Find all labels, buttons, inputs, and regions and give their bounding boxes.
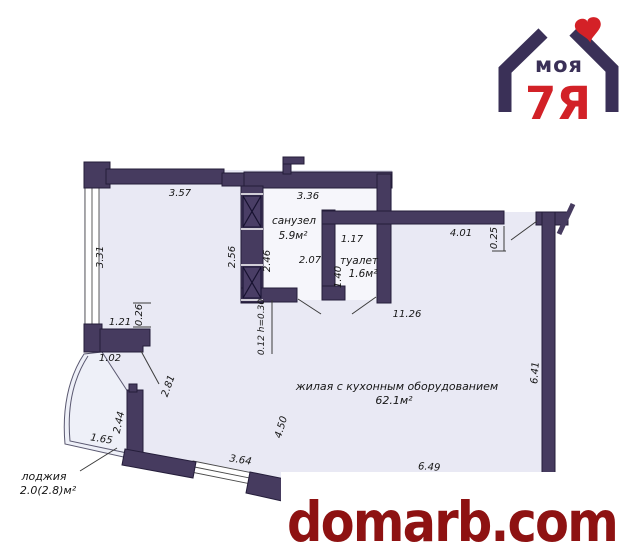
logo-brand: 7Я — [525, 77, 591, 130]
dim-bathroom-top: 3.36 — [297, 191, 319, 202]
agency-logo: моя 7Я — [505, 16, 612, 130]
wall-loggia-stub — [129, 384, 137, 392]
wall-top-b — [222, 173, 246, 186]
dim-shaft-outer: 2.56 — [227, 246, 238, 268]
dim-niche-depth: 0.26 — [134, 304, 145, 326]
dim-bottom-wall: 6.49 — [418, 461, 441, 474]
wall-right — [542, 212, 555, 473]
loggia-label: лоджия — [20, 470, 66, 483]
dim-bathroom-width: 2.07 — [299, 255, 322, 266]
living-label: жилая с кухонным оборудованием — [295, 380, 498, 393]
floorplan-page: 3.57 3.31 3.36 2.56 2.46 1.17 2.07 1.40 … — [0, 0, 630, 554]
dim-sill: 0.12 h=0.30 — [257, 299, 267, 355]
dim-shaft-inner: 2.46 — [262, 250, 273, 272]
wall-top-a — [106, 169, 224, 184]
bathroom-area: 5.9м² — [279, 230, 309, 242]
dim-toilet-width: 1.17 — [341, 234, 364, 245]
wall-hall-top — [322, 211, 504, 224]
dim-left-wall: 3.31 — [95, 246, 106, 268]
dim-top-left-wall: 3.57 — [169, 188, 192, 199]
toilet-label: туалет — [340, 255, 379, 267]
wall-niche-arm — [100, 329, 150, 352]
dim-entry-offset: 0.25 — [489, 227, 500, 249]
dim-pier: 1.02 — [99, 353, 121, 364]
floor-plan: 3.57 3.31 3.36 2.56 2.46 1.17 2.07 1.40 … — [0, 0, 630, 554]
living-area: 62.1м² — [375, 394, 413, 407]
vent-stub-h — [283, 157, 304, 164]
wall-bathroom-top — [244, 172, 392, 188]
bathroom-label: санузел — [272, 215, 316, 227]
dim-niche-width: 1.21 — [109, 317, 131, 328]
loggia-area: 2.0(2.8)м² — [20, 484, 77, 497]
wall-niche-corner — [84, 324, 102, 352]
toilet-area: 1.6м² — [349, 268, 379, 280]
dim-living-width: 11.26 — [393, 309, 422, 320]
dim-toilet-depth: 1.40 — [333, 266, 344, 288]
dim-hall-top: 4.01 — [450, 228, 472, 239]
dim-right-wall: 6.41 — [529, 361, 542, 384]
watermark-text: domarb.com — [287, 490, 617, 554]
logo-word: моя — [535, 53, 583, 77]
wall-bathroom-right — [377, 174, 391, 303]
